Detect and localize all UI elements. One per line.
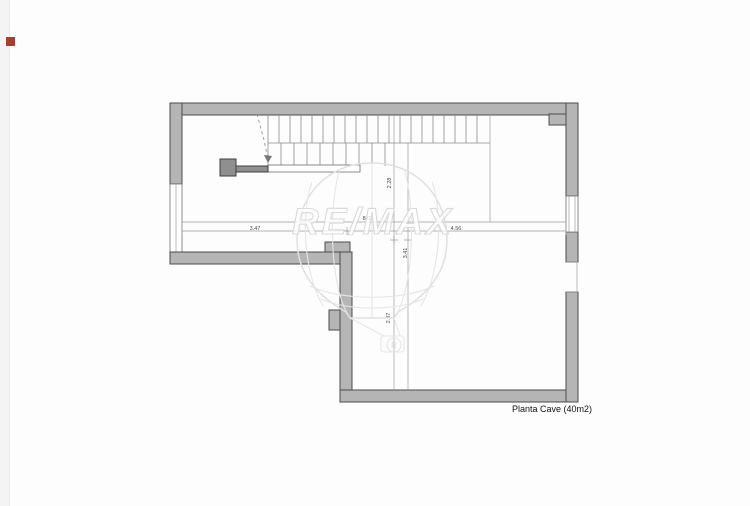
walls [170,103,578,402]
stair-stringer [268,165,360,172]
dim-mid-height: 3.41 [403,248,409,259]
wall-jog [329,310,340,330]
wall-right-upper [566,103,578,196]
wall-left-lower-room [340,252,352,402]
stair-treads-upper [268,115,477,143]
wall-step-top-right [549,114,566,125]
stair-handrail [234,166,268,172]
stairs [220,114,490,176]
dimension-lines: 8.03 3.47 4.56 2.28 3.41 2.87 [182,178,566,324]
wall-right-middle [566,232,578,262]
window-right [566,196,578,232]
balloon-basket: R [350,318,404,352]
wall-left-upper [170,103,182,184]
stair-handrail-post [220,159,236,176]
wall-pillar [325,242,350,252]
door-opening-right [566,262,578,292]
stair-walk-line [257,114,272,163]
balloon-registered-letter: R [391,341,397,350]
floorplan-drawing: 8.03 3.47 4.56 2.28 3.41 2.87 [0,0,750,506]
dim-stair-depth: 2.28 [387,178,393,189]
wall-right-lower [566,292,578,402]
floorplan-page: 8.03 3.47 4.56 2.28 3.41 2.87 [0,0,750,506]
dim-left-width: 3.47 [250,226,261,232]
wall-bottom [340,390,578,402]
wall-bottom-upper-room [170,252,352,264]
wall-top [170,103,578,115]
watermark-brand-text: RE/MAX [292,201,454,242]
stair-walk-arrow [264,155,272,163]
plan-title: Planta Cave (40m2) [512,404,592,414]
window-right-frame [566,196,578,232]
